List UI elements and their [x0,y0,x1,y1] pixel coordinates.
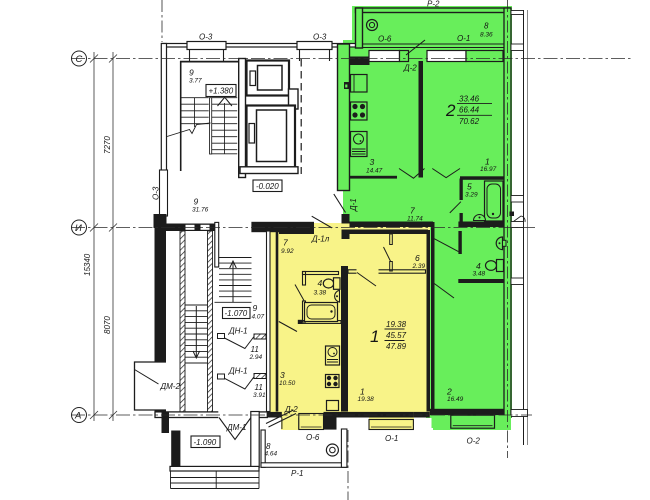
svg-text:3: 3 [370,157,375,167]
svg-text:5: 5 [467,182,472,192]
svg-text:7: 7 [283,238,288,248]
svg-text:45.57: 45.57 [386,331,407,340]
svg-text:7: 7 [410,206,415,216]
svg-text:10.50: 10.50 [279,380,296,387]
svg-text:7270: 7270 [103,136,112,154]
svg-text:33.46: 33.46 [459,95,480,104]
svg-text:О-3: О-3 [152,186,161,200]
svg-text:ДН-1: ДН-1 [228,327,248,336]
svg-text:16.97: 16.97 [480,166,497,173]
svg-text:-0.020: -0.020 [256,182,279,191]
svg-text:16.49: 16.49 [447,396,464,403]
svg-text:4: 4 [318,278,323,288]
svg-text:ДН-1: ДН-1 [228,367,248,376]
svg-text:11.74: 11.74 [407,216,423,223]
svg-text:4.64: 4.64 [265,451,278,458]
svg-text:14.47: 14.47 [366,168,383,175]
svg-text:-1.090: -1.090 [194,438,217,447]
svg-text:8070: 8070 [103,316,112,334]
svg-text:3.29: 3.29 [465,192,478,199]
svg-text:11: 11 [255,383,263,392]
svg-text:Р-2: Р-2 [427,0,440,9]
svg-text:3: 3 [280,370,285,380]
svg-text:2: 2 [445,101,456,120]
svg-text:С: С [76,54,83,65]
svg-text:4.07: 4.07 [252,314,265,321]
svg-text:9: 9 [189,68,194,78]
svg-text:9: 9 [194,197,199,207]
svg-text:70.62: 70.62 [459,117,480,126]
svg-text:47.89: 47.89 [386,342,407,351]
svg-text:1: 1 [360,387,365,397]
svg-text:Р-1: Р-1 [291,469,303,478]
svg-text:О-3: О-3 [199,33,213,42]
svg-text:9: 9 [253,303,258,313]
svg-text:3.38: 3.38 [314,290,327,297]
svg-text:4: 4 [476,261,481,271]
svg-text:+1.380: +1.380 [209,87,234,96]
svg-text:ДМ-2: ДМ-2 [160,382,181,391]
svg-text:2.39: 2.39 [412,263,426,270]
svg-text:-1.070: -1.070 [225,309,248,318]
svg-text:6: 6 [415,253,420,263]
svg-text:2: 2 [446,387,452,397]
svg-text:О-1: О-1 [385,434,398,443]
svg-text:1: 1 [370,327,379,346]
svg-text:31.76: 31.76 [192,207,209,214]
svg-text:9.92: 9.92 [281,248,294,255]
svg-text:8: 8 [484,22,489,31]
svg-text:66.44: 66.44 [459,106,480,115]
svg-text:8.36: 8.36 [480,32,493,39]
svg-text:Д-1л: Д-1л [311,235,330,244]
svg-text:15340: 15340 [83,253,92,276]
svg-text:19.38: 19.38 [386,320,407,329]
svg-text:И: И [75,223,82,234]
svg-text:3.91: 3.91 [253,392,266,399]
svg-text:Д-2: Д-2 [403,64,417,73]
svg-text:19.38: 19.38 [358,396,375,403]
svg-text:О-6: О-6 [306,433,320,442]
svg-text:Д-2: Д-2 [284,405,298,414]
svg-text:2.94: 2.94 [249,354,263,361]
svg-text:1: 1 [485,157,490,167]
svg-text:11: 11 [251,345,259,354]
svg-text:ДМ-1: ДМ-1 [226,423,246,432]
svg-text:О-2: О-2 [467,437,481,446]
svg-text:О-1: О-1 [457,34,470,43]
svg-text:3.48: 3.48 [473,271,486,278]
svg-text:О-3: О-3 [313,33,327,42]
svg-text:А: А [74,411,81,422]
svg-text:О-6: О-6 [378,35,392,44]
svg-text:Д-1: Д-1 [349,198,358,212]
svg-text:3.77: 3.77 [189,78,202,85]
